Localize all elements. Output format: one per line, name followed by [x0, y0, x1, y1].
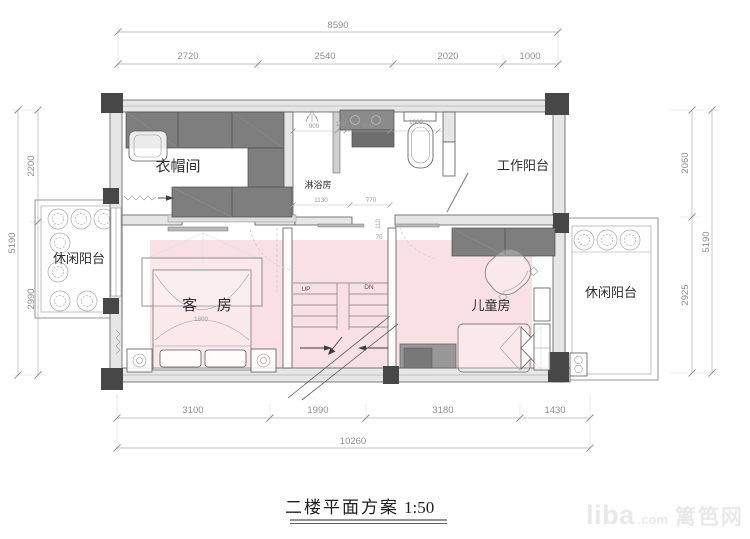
dim-stair-opening: 770	[366, 197, 377, 204]
dimension-top: 8590 2720 2540 2020 1000	[115, 20, 562, 70]
dimension-left: 5190 2200 2990	[7, 107, 46, 379]
dim-bottom-seg-3: 3180	[432, 405, 453, 416]
nightstand-left	[127, 349, 152, 372]
dim-counter-width: 900	[363, 123, 374, 130]
dim-top-seg-1: 2720	[177, 51, 198, 62]
room-label-leisure-balcony-left: 休闲阳台	[53, 251, 105, 266]
dim-top-total: 8590	[327, 20, 348, 31]
dimension-right: 2060 2925 5190	[670, 107, 718, 377]
dim-left-seg-1: 2200	[26, 155, 37, 176]
floor-drain-icon	[570, 353, 587, 376]
stair-down-label: DN	[364, 284, 374, 291]
dim-top-seg-4: 1000	[519, 51, 540, 62]
room-label-shower: 淋浴房	[304, 179, 331, 190]
dim-bottom-seg-1: 3100	[182, 405, 203, 416]
dim-top-seg-2: 2540	[314, 51, 335, 62]
room-label-work-balcony: 工作阳台	[497, 158, 549, 173]
wardrobe-cabinets	[126, 112, 296, 222]
room-label-guest-room: 客 房	[182, 297, 240, 314]
floorplan-canvas: 8590 2720 2540 2020 1000 5190 2200 2990 …	[0, 0, 750, 539]
room-label-cloakroom: 衣帽间	[155, 158, 200, 175]
dim-top-seg-3: 2020	[437, 51, 458, 62]
leisure-balcony-right: 休闲阳台	[565, 218, 658, 380]
dim-counter-gap: 190	[336, 121, 347, 128]
floorplan-drawing: 8590 2720 2540 2020 1000 5190 2200 2990 …	[0, 0, 750, 539]
dim-bottom-seg-4: 1430	[544, 405, 565, 416]
nightstand-right	[251, 349, 276, 372]
door-leaf	[447, 173, 468, 212]
cloakroom: 衣帽间	[126, 112, 296, 222]
opening-coil-icon	[124, 195, 174, 201]
dim-right-seg-1: 2060	[680, 152, 691, 173]
watermark-tld: .com	[638, 512, 668, 527]
dim-left-total: 5190	[7, 232, 18, 253]
watermark: liba .com 篱笆网	[586, 500, 744, 531]
dimension-bottom: 3100 1990 3180 1430 10260	[114, 394, 594, 452]
kids-desk	[400, 344, 456, 368]
dim-bottom-total: 10260	[340, 436, 366, 447]
dim-bed-width: 1800	[194, 316, 209, 323]
watermark-logo: liba	[586, 500, 635, 531]
work-balcony: 工作阳台	[447, 158, 549, 212]
stair-up-label: UP	[301, 286, 310, 293]
drawing-scale: 1:50	[404, 498, 434, 517]
sliding-door-guest	[168, 227, 228, 231]
watermark-site: 篱笆网	[675, 501, 744, 531]
title-block: 二楼平面方案 1:50	[285, 498, 447, 524]
dim-right-total: 5190	[701, 231, 712, 252]
dim-shower-width: 900	[309, 123, 320, 130]
room-label-leisure-balcony-right: 休闲阳台	[585, 285, 637, 300]
dim-bottom-seg-2: 1990	[307, 405, 328, 416]
drawing-title: 二楼平面方案	[285, 498, 399, 517]
dim-bath-wall: 1130	[314, 197, 328, 204]
shower-head-icon	[306, 111, 318, 122]
bedside-cabinet	[534, 288, 550, 370]
dim-jamb-depth: 70	[375, 234, 383, 241]
single-bed	[458, 324, 541, 372]
room-label-kids-room: 儿童房	[471, 298, 510, 313]
plant-icons-right	[574, 230, 640, 250]
sliding-door-kids	[395, 224, 439, 227]
dim-right-seg-2: 2925	[680, 284, 691, 305]
dim-toilet-bay: 1000	[409, 119, 424, 126]
dim-jamb-width: 110	[375, 218, 382, 229]
chair	[129, 131, 167, 161]
